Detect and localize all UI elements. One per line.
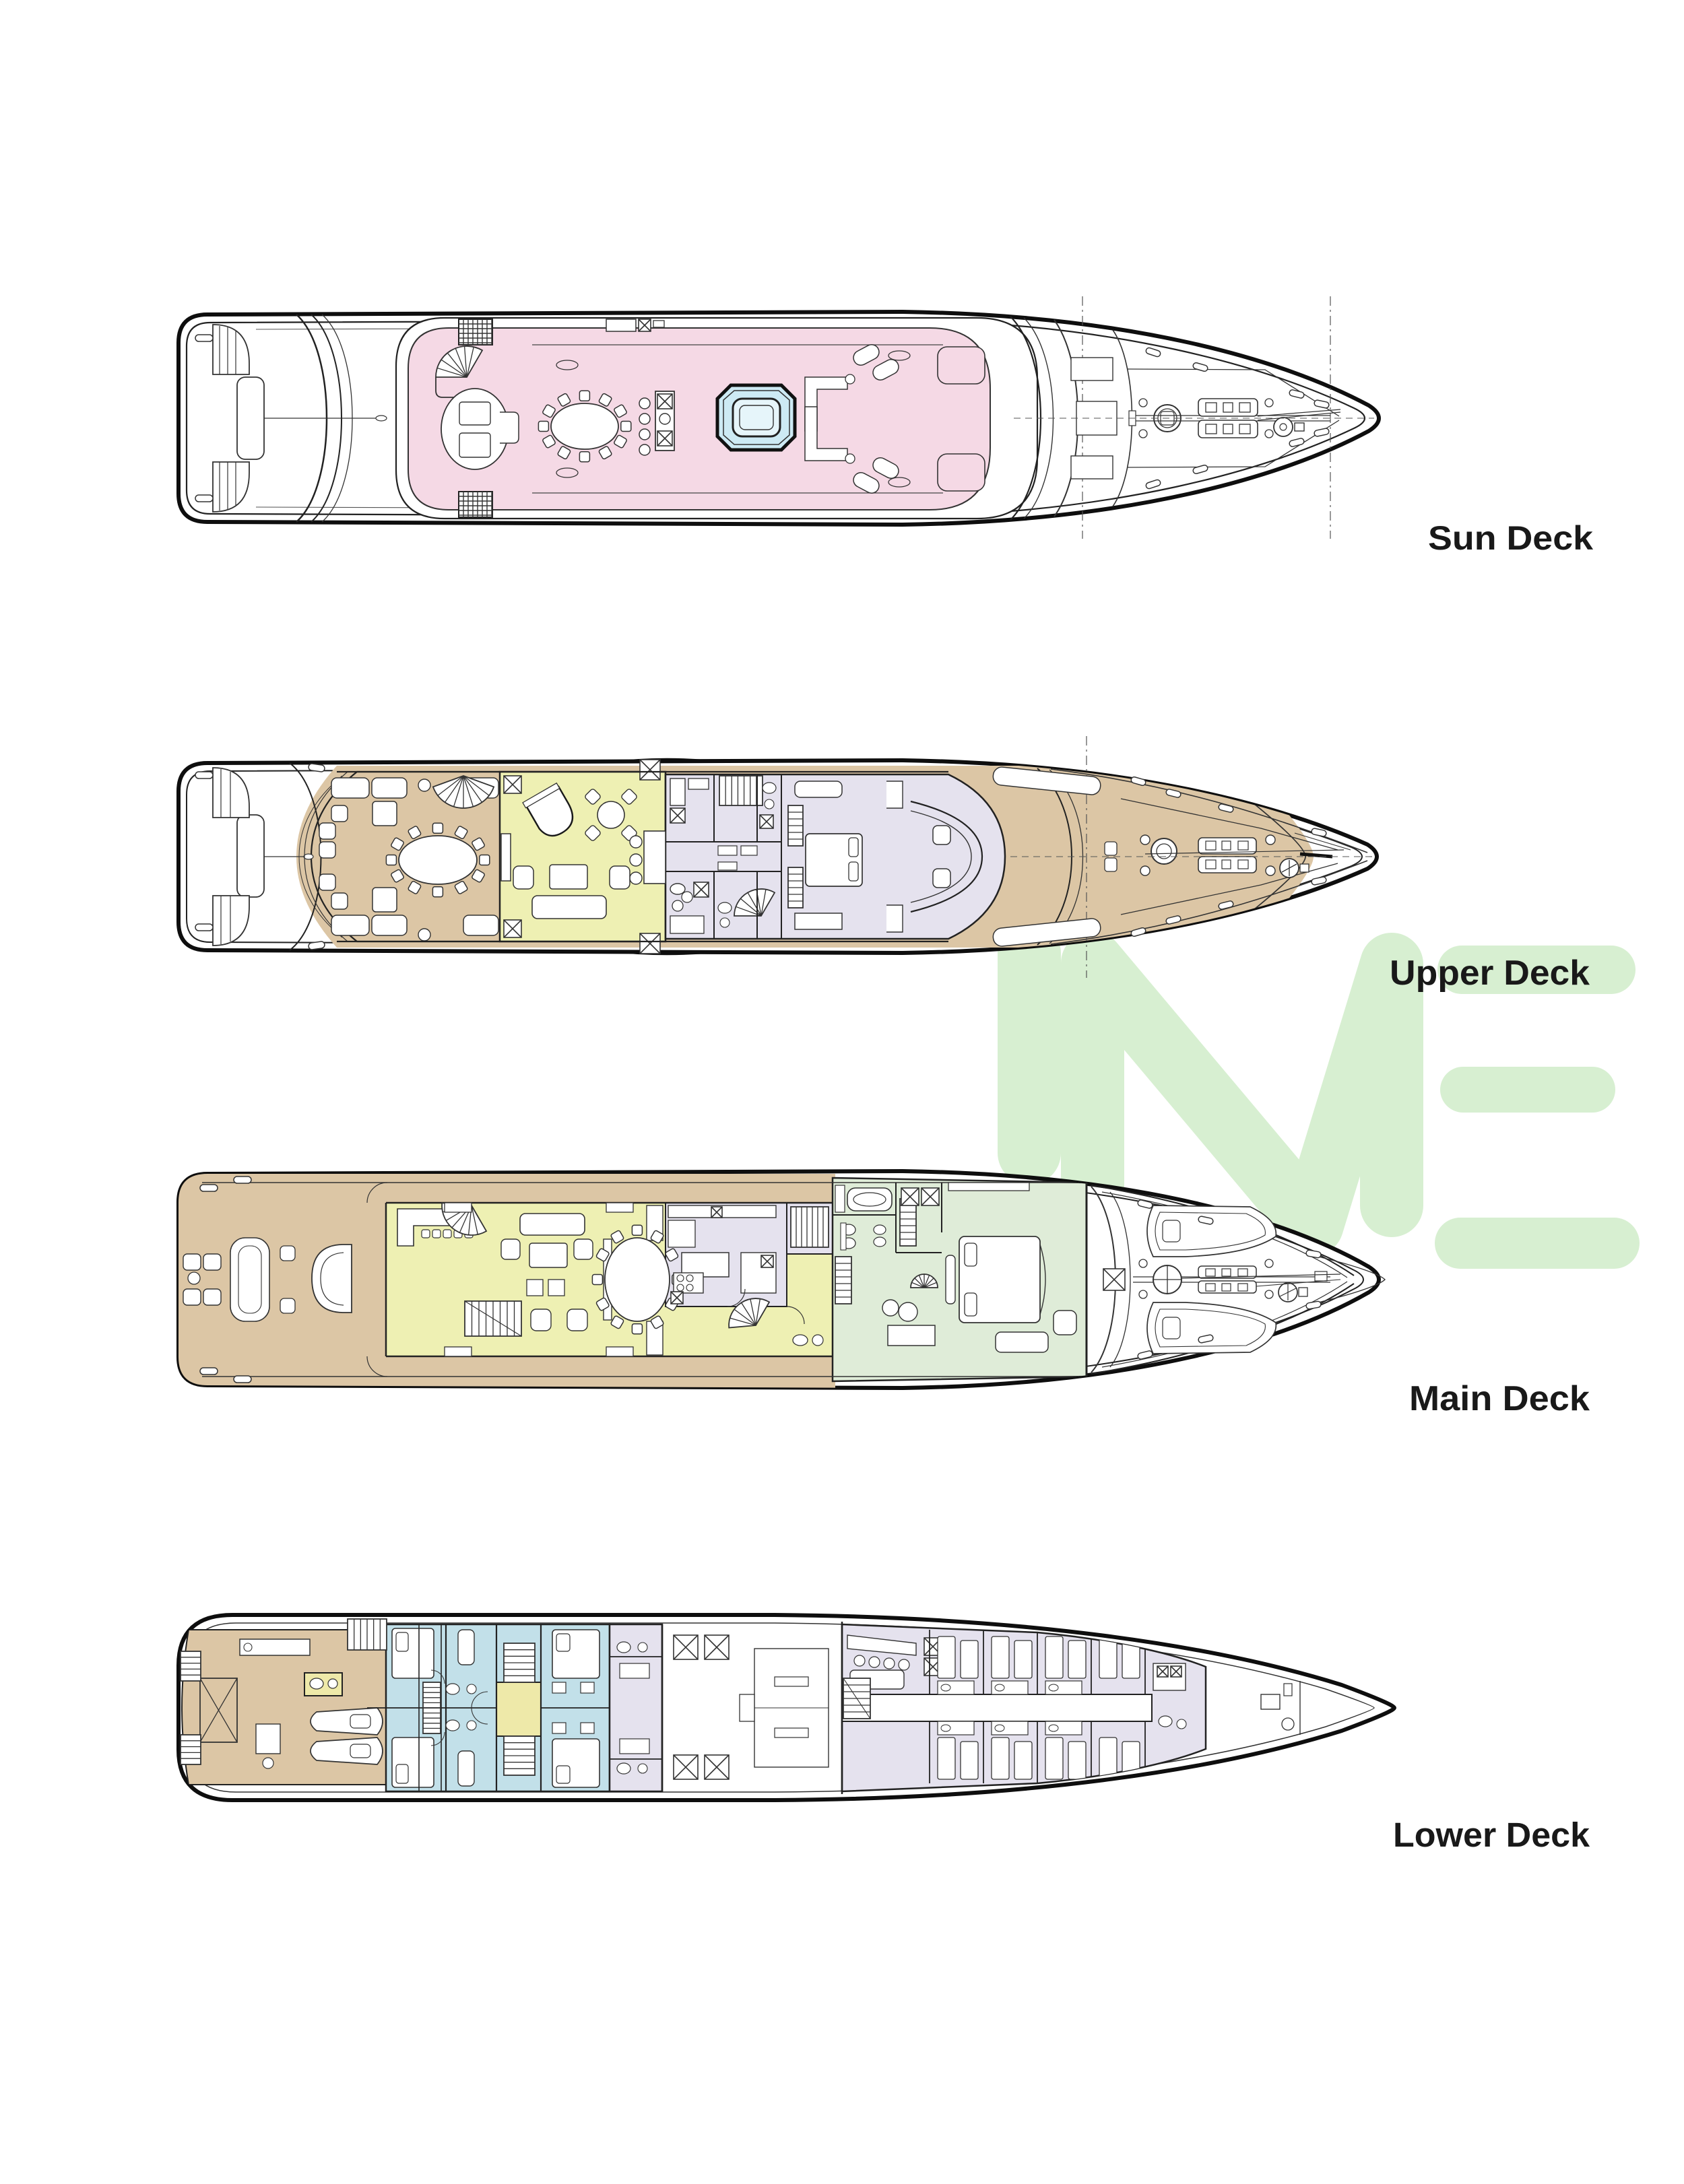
- svg-text:Lower Deck: Lower Deck: [1393, 1816, 1590, 1854]
- svg-text:Sun Deck: Sun Deck: [1428, 519, 1593, 557]
- svg-text:Upper Deck: Upper Deck: [1390, 954, 1590, 993]
- svg-text:Main Deck: Main Deck: [1409, 1379, 1590, 1418]
